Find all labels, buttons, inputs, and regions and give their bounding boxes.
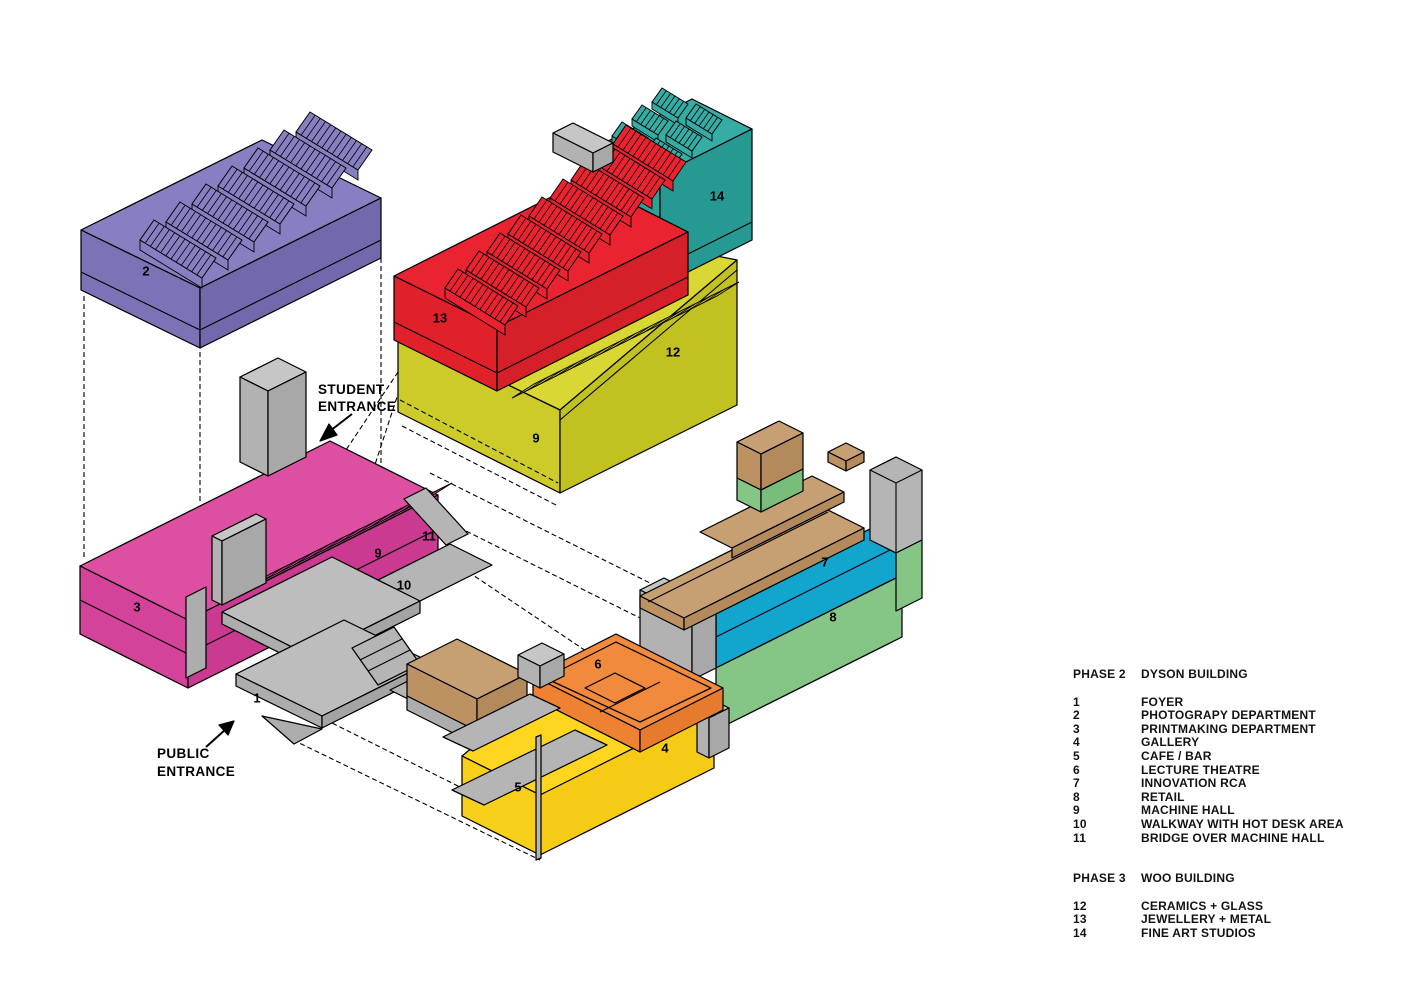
legend-item-label: INNOVATION RCA [1141, 777, 1247, 791]
building-label-5: 5 [514, 780, 521, 795]
legend-phase2-header: PHASE 2 DYSON BUILDING [1073, 668, 1383, 682]
legend-item-number: 8 [1073, 791, 1141, 805]
legend-item: 13JEWELLERY + METAL [1073, 913, 1383, 927]
building-label-7: 7 [821, 555, 828, 570]
building-label-8: 8 [829, 610, 836, 625]
foyer-wall [186, 587, 206, 678]
entrance-tower-right [268, 372, 306, 476]
legend-item-label: RETAIL [1141, 791, 1185, 805]
legend-item: 5CAFE / BAR [1073, 750, 1383, 764]
legend-item-number: 5 [1073, 750, 1141, 764]
legend-item-label: BRIDGE OVER MACHINE HALL [1141, 832, 1324, 846]
student-entrance-label: ENTRANCE [318, 399, 396, 414]
legend-item-label: GALLERY [1141, 736, 1199, 750]
legend-item-label: PRINTMAKING DEPARTMENT [1141, 723, 1316, 737]
legend-phase3-section: PHASE 3 WOO BUILDING 12CERAMICS + GLASS1… [1073, 872, 1383, 940]
legend-item-label: MACHINE HALL [1141, 804, 1235, 818]
legend-item-label: CAFE / BAR [1141, 750, 1212, 764]
projection-line [452, 524, 648, 622]
legend-item-number: 12 [1073, 900, 1141, 914]
legend: PHASE 2 DYSON BUILDING 1FOYER2PHOTOGRAPY… [1073, 668, 1383, 941]
building-label-9: 9 [374, 546, 381, 561]
legend-item: 2PHOTOGRAPY DEPARTMENT [1073, 709, 1383, 723]
building-label-3: 3 [133, 600, 140, 615]
public-entrance-label: ENTRANCE [157, 764, 235, 779]
building-label-10: 10 [397, 578, 411, 593]
legend-item: 3PRINTMAKING DEPARTMENT [1073, 723, 1383, 737]
legend-item-number: 6 [1073, 764, 1141, 778]
legend-item: 11BRIDGE OVER MACHINE HALL [1073, 832, 1383, 846]
legend-item-label: CERAMICS + GLASS [1141, 900, 1263, 914]
legend-item-label: LECTURE THEATRE [1141, 764, 1260, 778]
phase3-label: PHASE 3 [1073, 872, 1141, 886]
cafe-post [536, 735, 541, 860]
building-label-13: 13 [433, 311, 447, 326]
public-entrance-arrow-shaft [206, 729, 226, 747]
legend-item-label: WALKWAY WITH HOT DESK AREA [1141, 818, 1344, 832]
public-entrance-label: PUBLIC [157, 746, 210, 761]
building-label-14: 14 [710, 189, 725, 204]
legend-item-number: 13 [1073, 913, 1141, 927]
student-entrance-arrow-shaft [330, 414, 352, 431]
legend-item-number: 14 [1073, 927, 1141, 941]
building-label-12: 12 [666, 345, 680, 360]
legend-item-number: 4 [1073, 736, 1141, 750]
legend-item: 7INNOVATION RCA [1073, 777, 1383, 791]
legend-item-label: JEWELLERY + METAL [1141, 913, 1271, 927]
legend-item-label: PHOTOGRAPY DEPARTMENT [1141, 709, 1316, 723]
entrance-tower-left [240, 377, 268, 476]
phase2-building-name: DYSON BUILDING [1141, 668, 1248, 682]
retail-end-wedge [896, 540, 922, 611]
legend-item: 1FOYER [1073, 696, 1383, 710]
legend-phase3-header: PHASE 3 WOO BUILDING [1073, 872, 1383, 886]
building-label-2: 2 [142, 264, 149, 279]
legend-item-label: FOYER [1141, 696, 1183, 710]
legend-item-number: 1 [1073, 696, 1141, 710]
legend-item-number: 9 [1073, 804, 1141, 818]
legend-item: 8RETAIL [1073, 791, 1383, 805]
building-label-4: 4 [661, 741, 669, 756]
legend-item-number: 3 [1073, 723, 1141, 737]
building-label-1: 1 [253, 691, 260, 706]
building-label-9: 9 [532, 431, 539, 446]
legend-item: 4GALLERY [1073, 736, 1383, 750]
legend-item-label: FINE ART STUDIOS [1141, 927, 1256, 941]
phase3-building-name: WOO BUILDING [1141, 872, 1235, 886]
legend-item: 10WALKWAY WITH HOT DESK AREA [1073, 818, 1383, 832]
legend-item: 6LECTURE THEATRE [1073, 764, 1383, 778]
building-label-6: 6 [594, 657, 601, 672]
canvas: 21314129391110164578STUDENTENTRANCEPUBLI… [0, 0, 1410, 1000]
legend-item-number: 7 [1073, 777, 1141, 791]
legend-phase3-items: 12CERAMICS + GLASS13JEWELLERY + METAL14F… [1073, 900, 1383, 941]
legend-item: 12CERAMICS + GLASS [1073, 900, 1383, 914]
legend-phase2-section: PHASE 2 DYSON BUILDING 1FOYER2PHOTOGRAPY… [1073, 668, 1383, 845]
legend-item: 14FINE ART STUDIOS [1073, 927, 1383, 941]
building-label-11: 11 [422, 529, 436, 544]
phase2-label: PHASE 2 [1073, 668, 1141, 682]
legend-item: 9MACHINE HALL [1073, 804, 1383, 818]
legend-item-number: 11 [1073, 832, 1141, 846]
legend-item-number: 10 [1073, 818, 1141, 832]
student-entrance-label: STUDENT [318, 382, 385, 397]
legend-item-number: 2 [1073, 709, 1141, 723]
foyer-block-left [212, 536, 222, 605]
legend-phase2-items: 1FOYER2PHOTOGRAPY DEPARTMENT3PRINTMAKING… [1073, 696, 1383, 846]
